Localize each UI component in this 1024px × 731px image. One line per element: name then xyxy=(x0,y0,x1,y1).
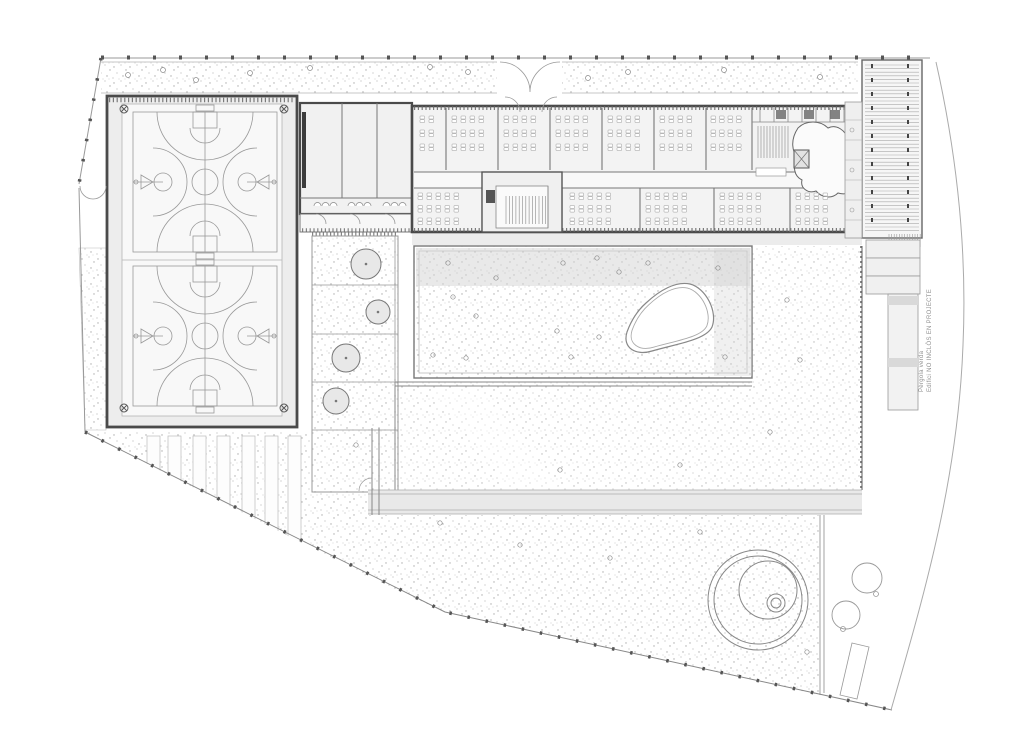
desk xyxy=(687,116,692,119)
desk xyxy=(556,116,561,119)
desk xyxy=(682,218,687,221)
parking-strips xyxy=(147,436,301,551)
desk xyxy=(796,218,801,221)
desk xyxy=(729,193,734,196)
desk xyxy=(531,116,536,119)
desk xyxy=(756,218,761,221)
desk xyxy=(720,206,725,209)
desk xyxy=(513,144,518,147)
desk xyxy=(583,144,588,147)
side-gate xyxy=(80,186,106,199)
floor-plan-page: Pèrgola verda Edifici NO INCLÒS EN PROJE… xyxy=(0,0,1024,731)
desk xyxy=(597,193,602,196)
desk xyxy=(626,130,631,133)
desk xyxy=(626,116,631,119)
desk xyxy=(588,206,593,209)
desk xyxy=(660,144,665,147)
desk xyxy=(617,116,622,119)
desk xyxy=(673,218,678,221)
desk xyxy=(687,144,692,147)
desk xyxy=(687,130,692,133)
desk xyxy=(655,218,660,221)
desk xyxy=(504,116,509,119)
classroom-building xyxy=(412,97,860,232)
desk xyxy=(522,144,527,147)
small-tree xyxy=(586,76,591,81)
desk xyxy=(814,218,819,221)
small-tree xyxy=(161,68,166,73)
sanitary-fixtures xyxy=(314,203,406,206)
desk xyxy=(678,144,683,147)
desk xyxy=(646,218,651,221)
desk xyxy=(738,206,743,209)
desk xyxy=(454,218,459,221)
desk xyxy=(574,144,579,147)
parking-strip xyxy=(193,436,206,503)
desk xyxy=(720,218,725,221)
desk xyxy=(655,206,660,209)
desk xyxy=(669,130,674,133)
small-tree xyxy=(818,75,823,80)
desk xyxy=(720,130,725,133)
desk xyxy=(418,218,423,221)
desk xyxy=(570,218,575,221)
desk xyxy=(796,206,801,209)
desk xyxy=(445,206,450,209)
desk xyxy=(805,206,810,209)
desk xyxy=(660,116,665,119)
desk xyxy=(556,130,561,133)
desk xyxy=(738,193,743,196)
lower-playground xyxy=(368,515,820,695)
desk xyxy=(570,193,575,196)
desk xyxy=(445,218,450,221)
desk xyxy=(429,144,434,147)
top-planting-strip xyxy=(101,62,858,93)
small-tree xyxy=(308,66,313,71)
desk xyxy=(635,130,640,133)
desk xyxy=(664,193,669,196)
desk xyxy=(673,206,678,209)
desk xyxy=(747,218,752,221)
desk xyxy=(427,218,432,221)
desk xyxy=(470,130,475,133)
desk xyxy=(452,144,457,147)
desk xyxy=(579,206,584,209)
small-tree xyxy=(626,70,631,75)
small-tree xyxy=(248,71,253,76)
desk xyxy=(588,218,593,221)
floor-plan-drawing: Pèrgola verda Edifici NO INCLÒS EN PROJE… xyxy=(0,0,1024,731)
desk xyxy=(747,193,752,196)
desk xyxy=(796,193,801,196)
desk xyxy=(711,130,716,133)
desk xyxy=(646,206,651,209)
desk xyxy=(454,206,459,209)
gym-building xyxy=(107,96,297,427)
small-tree xyxy=(428,65,433,70)
desk xyxy=(579,193,584,196)
side-annotation: Pèrgola verda Edifici NO INCLÒS EN PROJE… xyxy=(919,289,933,392)
desk xyxy=(429,116,434,119)
desk xyxy=(574,116,579,119)
desk xyxy=(823,193,828,196)
desk xyxy=(756,206,761,209)
desk xyxy=(738,218,743,221)
desk xyxy=(606,206,611,209)
desk xyxy=(823,218,828,221)
main-gate-doors xyxy=(500,62,560,92)
desk xyxy=(608,116,613,119)
desk xyxy=(436,193,441,196)
corridor xyxy=(414,172,858,188)
elevator xyxy=(794,150,809,168)
desk xyxy=(682,206,687,209)
desk xyxy=(461,130,466,133)
desk xyxy=(617,130,622,133)
desk xyxy=(597,206,602,209)
desk xyxy=(608,144,613,147)
tree xyxy=(852,563,882,593)
desk xyxy=(570,206,575,209)
desk xyxy=(678,130,683,133)
desk xyxy=(720,193,725,196)
desk xyxy=(728,116,733,119)
desk xyxy=(729,218,734,221)
desk xyxy=(711,144,716,147)
parking-strip xyxy=(147,436,160,480)
desk xyxy=(420,130,425,133)
annotation-line-2: Edifici NO INCLÒS EN PROJECTE xyxy=(926,289,933,392)
desk xyxy=(504,130,509,133)
desk xyxy=(814,206,819,209)
desk xyxy=(728,130,733,133)
parking-strip xyxy=(168,436,181,491)
desk xyxy=(436,206,441,209)
desk xyxy=(669,144,674,147)
desk xyxy=(574,130,579,133)
desk xyxy=(470,116,475,119)
desk xyxy=(673,193,678,196)
desk xyxy=(669,116,674,119)
desk xyxy=(461,116,466,119)
desk xyxy=(805,193,810,196)
desk xyxy=(565,130,570,133)
desk xyxy=(737,144,742,147)
desk xyxy=(720,116,725,119)
desk xyxy=(606,218,611,221)
desk xyxy=(606,193,611,196)
small-tree xyxy=(722,68,727,73)
desk xyxy=(814,193,819,196)
desk xyxy=(479,144,484,147)
desk xyxy=(427,193,432,196)
desk xyxy=(504,144,509,147)
small-tree xyxy=(466,70,471,75)
desk xyxy=(583,130,588,133)
desk xyxy=(418,206,423,209)
small-tree xyxy=(126,73,131,78)
desk xyxy=(720,144,725,147)
desk xyxy=(655,193,660,196)
desk xyxy=(427,206,432,209)
desk xyxy=(579,218,584,221)
desk xyxy=(583,116,588,119)
desk xyxy=(711,116,716,119)
desk xyxy=(513,130,518,133)
desk xyxy=(522,116,527,119)
desk xyxy=(522,130,527,133)
small-tree xyxy=(194,78,199,83)
existing-rooms-south xyxy=(866,240,920,410)
parking-strip xyxy=(288,436,301,551)
desk xyxy=(452,130,457,133)
desk xyxy=(445,193,450,196)
desk xyxy=(418,193,423,196)
annotation-line-1: Pèrgola verda xyxy=(919,350,925,392)
desk xyxy=(461,144,466,147)
desk xyxy=(729,206,734,209)
desk xyxy=(588,193,593,196)
desk xyxy=(747,206,752,209)
service-rooms xyxy=(845,102,862,238)
desk xyxy=(597,218,602,221)
desk xyxy=(531,144,536,147)
desk xyxy=(682,193,687,196)
desk xyxy=(664,206,669,209)
desk xyxy=(556,144,561,147)
desk xyxy=(728,144,733,147)
bench-slab xyxy=(840,643,869,699)
desk xyxy=(805,218,810,221)
desk xyxy=(479,116,484,119)
desk xyxy=(452,116,457,119)
desk xyxy=(479,130,484,133)
path-band xyxy=(368,490,862,514)
desk xyxy=(470,144,475,147)
desk xyxy=(626,144,631,147)
desk xyxy=(420,144,425,147)
desk xyxy=(823,206,828,209)
desk xyxy=(531,130,536,133)
site-trees xyxy=(832,563,882,632)
desk xyxy=(617,144,622,147)
desk xyxy=(420,116,425,119)
desk xyxy=(660,130,665,133)
desk xyxy=(737,130,742,133)
desk xyxy=(756,193,761,196)
desk xyxy=(635,116,640,119)
desk xyxy=(429,130,434,133)
desk xyxy=(646,193,651,196)
tree xyxy=(832,601,860,629)
desk xyxy=(737,116,742,119)
desk xyxy=(454,193,459,196)
desk xyxy=(678,116,683,119)
desk xyxy=(436,218,441,221)
desk xyxy=(565,116,570,119)
desk xyxy=(635,144,640,147)
desk xyxy=(513,116,518,119)
desk xyxy=(565,144,570,147)
desk xyxy=(664,218,669,221)
desk xyxy=(608,130,613,133)
locker-rooms xyxy=(300,103,412,232)
